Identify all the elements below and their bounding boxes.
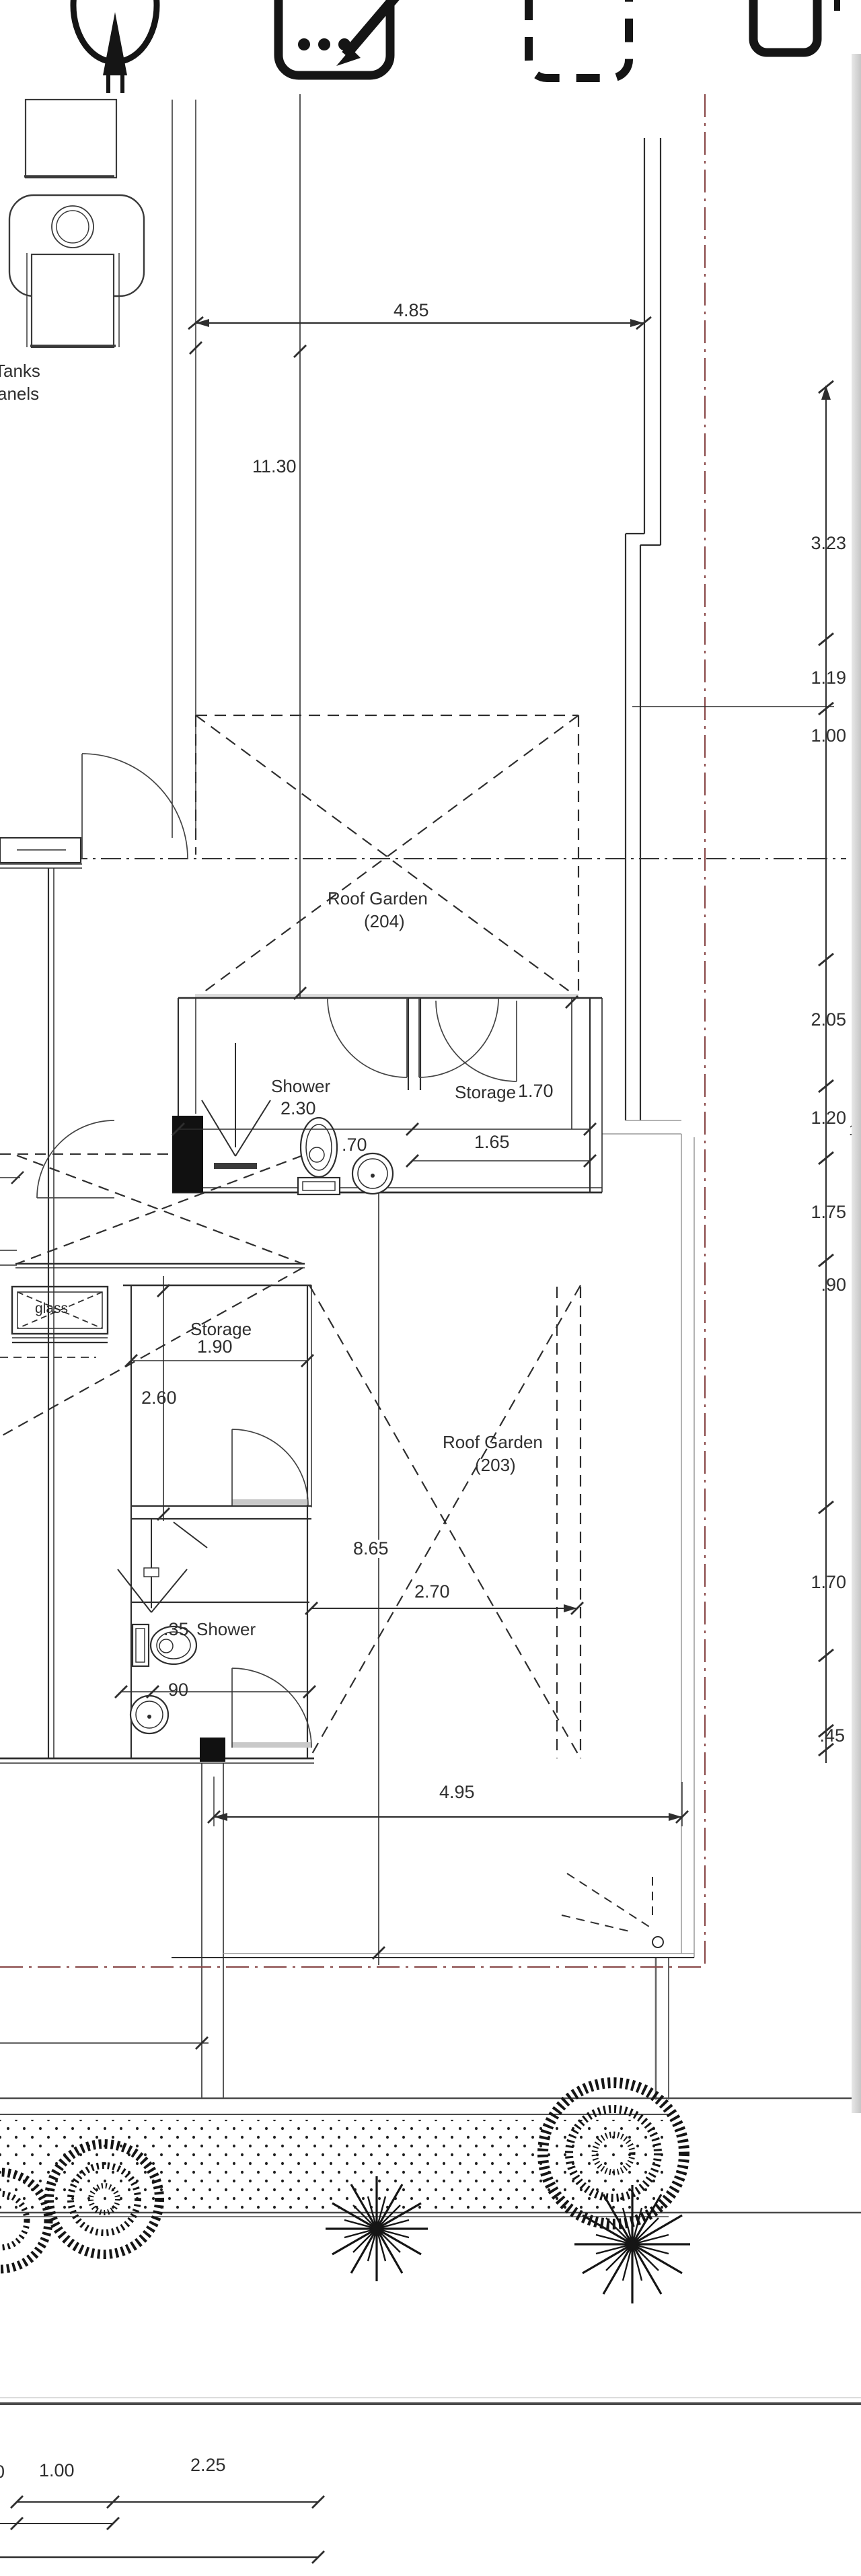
dim-col-1-75: 1.75	[799, 1203, 846, 1221]
toolbar	[0, 0, 861, 101]
room-roof-garden-203-number: (203)	[475, 1456, 516, 1474]
property-boundary-red	[0, 94, 705, 1967]
dim-toilet-offset: .35	[163, 1620, 189, 1639]
dim-storage2-depth: 2.60	[141, 1389, 177, 1407]
tanks-label: Tanks	[0, 362, 40, 380]
dim-storage2-width: 1.90	[197, 1338, 233, 1356]
dim-col-45: .45	[804, 1727, 845, 1745]
dim-street-2-25: 2.25	[190, 2456, 226, 2474]
plan-drawing	[0, 0, 861, 2576]
dim-storage-width: 1.65	[474, 1133, 510, 1151]
plant-symbols	[0, 2083, 690, 2303]
room-storage-lower: Storage	[190, 1320, 252, 1338]
room-shower-lower: Shower	[196, 1620, 256, 1638]
dim-left-height: 11.30	[250, 458, 299, 476]
panels-label: anels	[0, 385, 39, 402]
dim-col-1-19: 1.19	[799, 669, 846, 687]
dim-col-90: .90	[799, 1276, 846, 1294]
compass-icon[interactable]	[73, 0, 157, 93]
shower-symbol-lower	[118, 1519, 187, 1612]
sink-lower	[130, 1696, 168, 1733]
dim-shower-width: 2.30	[280, 1100, 316, 1118]
dim-col-1-00: 1.00	[799, 727, 846, 745]
room-storage-upper: Storage	[455, 1083, 516, 1101]
room-shower-upper: Shower	[271, 1077, 330, 1095]
room-roof-garden-204-number: (204)	[364, 913, 405, 930]
glass-label: glass	[35, 1301, 68, 1316]
terrace	[172, 1873, 694, 1958]
dim-shower-part: .70	[342, 1136, 367, 1154]
dimension-lines	[0, 94, 834, 2563]
dim-top-width: 4.85	[394, 301, 429, 320]
dim-col-1-20: 1.20	[799, 1109, 846, 1127]
dim-garden-height: 8.65	[351, 1540, 391, 1558]
roof-equipment	[9, 100, 144, 347]
shower-symbol-upper	[202, 1043, 270, 1169]
roof-garden-204-outline	[196, 715, 578, 998]
dim-col-3-23: 3.23	[799, 534, 846, 552]
room-roof-garden-204: Roof Garden	[328, 890, 428, 907]
dim-col-2-05: 2.05	[799, 1011, 846, 1029]
dashed-selection-icon[interactable]	[529, 0, 629, 78]
dim-garden-width: 2.70	[414, 1583, 450, 1601]
page-edge-shadow	[852, 54, 861, 2113]
markup-compose-icon[interactable]	[278, 0, 400, 75]
room-roof-garden-203: Roof Garden	[443, 1433, 543, 1451]
floor-plan-page: Tanks anels 4.85 11.30 Roof Garden (204)…	[0, 0, 861, 2576]
roof-garden-203-outline	[309, 1285, 581, 1758]
sink-upper	[352, 1153, 393, 1194]
walls-and-extension-lines	[172, 100, 694, 2100]
dim-sink-width: 90	[168, 1681, 188, 1699]
dim-street-partial: 0	[0, 2463, 7, 2481]
dim-street-1-00: 1.00	[39, 2462, 75, 2480]
dim-terrace-width: 4.95	[439, 1783, 475, 1801]
rounded-square-icon[interactable]	[753, 0, 840, 52]
dim-storage-depth: 1.70	[518, 1082, 554, 1100]
dim-col-1-70: 1.70	[799, 1573, 846, 1591]
window-left	[0, 838, 82, 868]
